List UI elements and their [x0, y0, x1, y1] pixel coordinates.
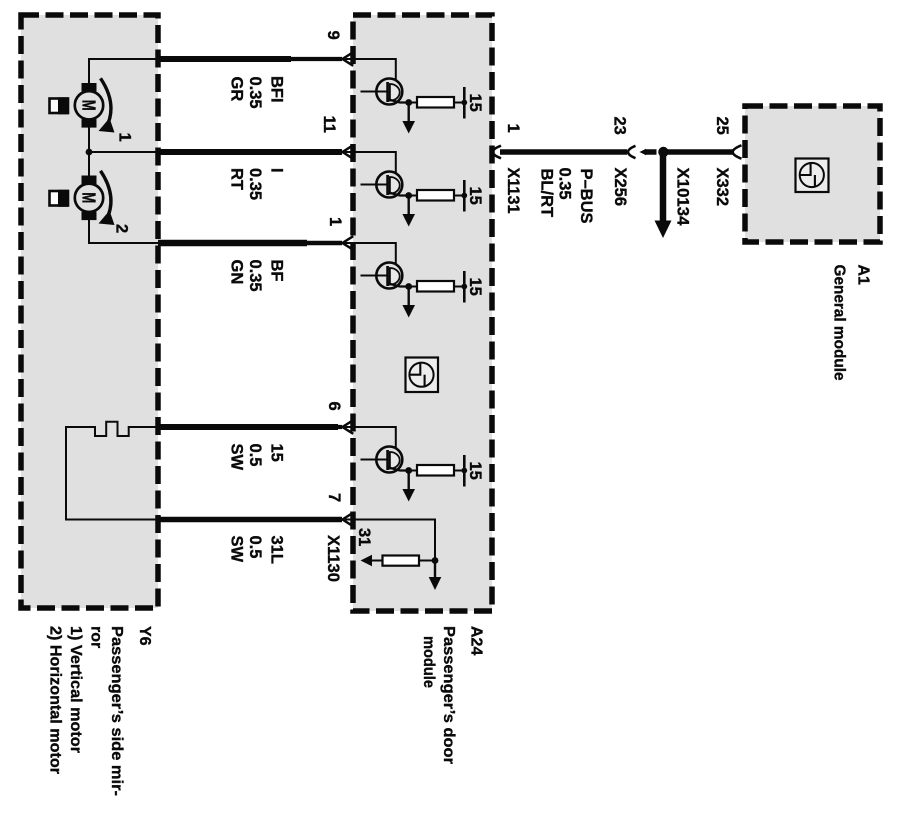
svg-text:GN: GN [228, 260, 246, 285]
svg-text:1: 1 [116, 133, 134, 142]
svg-text:15: 15 [466, 462, 484, 480]
svg-text:1: 1 [504, 124, 522, 133]
svg-text:0.5: 0.5 [246, 536, 264, 559]
svg-text:23: 23 [611, 117, 629, 135]
svg-text:X1130: X1130 [324, 535, 342, 582]
svg-text:15: 15 [466, 278, 484, 296]
svg-text:6: 6 [325, 402, 343, 411]
svg-text:X10134: X10134 [674, 168, 692, 227]
svg-text:15: 15 [466, 187, 484, 205]
svg-text:M: M [78, 100, 98, 111]
svg-text:15: 15 [268, 444, 286, 462]
svg-text:A1: A1 [855, 265, 872, 286]
svg-text:1) Vertical motor: 1) Vertical motor [67, 626, 84, 753]
svg-text:X1131: X1131 [504, 168, 522, 214]
svg-text:0.5: 0.5 [246, 444, 264, 467]
svg-text:2) Horizontal motor: 2) Horizontal motor [47, 626, 64, 774]
svg-text:31: 31 [355, 528, 373, 546]
svg-text:SW: SW [228, 444, 246, 471]
svg-text:Passenger’s side mir-: Passenger’s side mir- [108, 626, 125, 796]
svg-text:M: M [78, 192, 98, 203]
svg-text:P–BUS: P–BUS [577, 169, 595, 224]
svg-text:0.35: 0.35 [246, 260, 264, 292]
svg-text:I: I [268, 168, 286, 173]
svg-text:BL/RT: BL/RT [538, 169, 556, 218]
svg-text:0.35: 0.35 [556, 168, 574, 200]
svg-text:31L: 31L [268, 536, 286, 564]
svg-text:9: 9 [324, 31, 342, 40]
svg-text:RT: RT [228, 168, 246, 190]
svg-text:2: 2 [113, 224, 131, 233]
svg-text:GR: GR [228, 77, 246, 102]
svg-text:module: module [420, 636, 437, 688]
svg-text:Passenger’s door: Passenger’s door [440, 626, 457, 764]
svg-text:BF: BF [268, 260, 286, 282]
svg-text:SW: SW [228, 536, 246, 563]
svg-text:ror: ror [88, 626, 105, 648]
svg-text:0.35: 0.35 [246, 168, 264, 200]
svg-text:1: 1 [326, 217, 344, 226]
svg-text:A24: A24 [468, 626, 485, 655]
svg-text:Y6: Y6 [136, 626, 153, 646]
svg-text:General module: General module [831, 265, 848, 381]
svg-text:BFI: BFI [268, 76, 286, 103]
svg-text:11: 11 [320, 116, 338, 133]
svg-text:25: 25 [713, 117, 731, 135]
svg-text:15: 15 [466, 94, 484, 112]
svg-text:X332: X332 [713, 168, 731, 207]
svg-text:X256: X256 [611, 168, 629, 207]
svg-text:0.35: 0.35 [246, 77, 264, 109]
svg-text:7: 7 [325, 493, 343, 502]
